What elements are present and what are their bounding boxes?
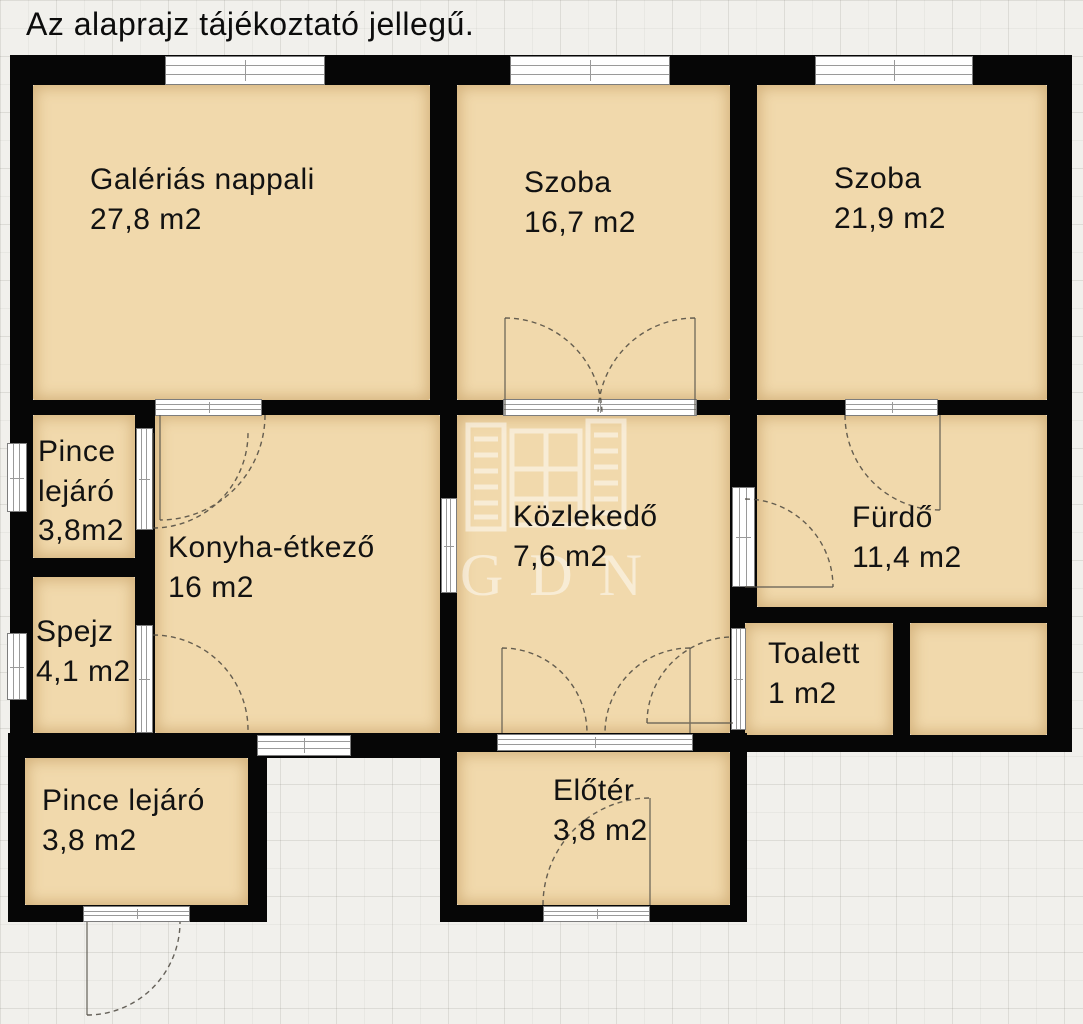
window-icon — [165, 56, 325, 85]
room-name: Pince lejáró — [38, 432, 142, 511]
room-szoba-1 — [457, 85, 730, 400]
window-icon — [510, 56, 670, 85]
room-area: 16 m2 — [168, 568, 448, 608]
room-area: 3,8 m2 — [42, 821, 252, 861]
door-opening-icon — [543, 906, 650, 922]
room-area: 1 m2 — [768, 674, 898, 714]
room-area: 7,6 m2 — [513, 537, 733, 577]
door-opening-icon — [503, 399, 697, 416]
room-name: Galériás nappali — [90, 160, 410, 200]
room-name: Fürdő — [852, 498, 1032, 538]
wall-eloter-right — [730, 733, 747, 922]
wall-szoba1-szoba2 — [730, 55, 757, 415]
room-label-szoba-1: Szoba 16,7 m2 — [524, 163, 704, 242]
room-area: 21,9 m2 — [834, 199, 1014, 239]
room-label-galerias-nappali: Galériás nappali 27,8 m2 — [90, 160, 410, 239]
door-opening-icon — [497, 734, 693, 751]
room-name: Előtér — [553, 771, 713, 811]
room-galerias-nappali — [33, 85, 430, 400]
room-label-kozlekedo: Közlekedő 7,6 m2 — [513, 497, 733, 576]
door-opening-icon — [83, 906, 190, 922]
window-icon — [815, 56, 973, 85]
room-name: Spejz — [36, 612, 156, 652]
wall-bottom-left-section — [8, 733, 457, 758]
wall-nappali-szoba1 — [430, 55, 457, 415]
room-label-spejz: Spejz 4,1 m2 — [36, 612, 156, 691]
window-icon — [257, 735, 351, 756]
room-name: Szoba — [524, 163, 704, 203]
room-label-pince-lejaro-also: Pince lejáró 3,8 m2 — [42, 781, 252, 860]
door-opening-icon — [845, 399, 938, 416]
room-label-eloter: Előtér 3,8 m2 — [553, 771, 713, 850]
room-area: 11,4 m2 — [852, 538, 1032, 578]
room-name: Konyha-étkező — [168, 528, 448, 568]
room-name: Közlekedő — [513, 497, 733, 537]
room-szoba-2 — [757, 85, 1047, 400]
room-area: 3,8m2 — [38, 511, 142, 551]
floorplan-canvas: GDN Galériás nappali 27,8 m2 Szoba 16,7 … — [0, 0, 1083, 1024]
room-label-toalett: Toalett 1 m2 — [768, 634, 898, 713]
room-label-furdo: Fürdő 11,4 m2 — [852, 498, 1032, 577]
door-opening-icon — [732, 487, 755, 587]
room-area: 4,1 m2 — [36, 652, 156, 692]
room-area: 27,8 m2 — [90, 200, 410, 240]
door-opening-icon — [731, 628, 746, 730]
room-name: Szoba — [834, 159, 1014, 199]
wall-bottom-right-section — [730, 735, 1072, 752]
room-name: Pince lejáró — [42, 781, 252, 821]
room-unlabeled-right — [910, 623, 1047, 735]
wall-eloter-left — [440, 733, 457, 922]
wall-pincealso-left — [8, 743, 25, 922]
wall-pincefelso-spejz — [10, 558, 155, 577]
room-label-konyha-etkezo: Konyha-étkező 16 m2 — [168, 528, 448, 607]
room-area: 3,8 m2 — [553, 811, 713, 851]
disclaimer-title: Az alaprajz tájékoztató jellegű. — [26, 6, 474, 43]
window-icon — [7, 443, 27, 512]
room-name: Toalett — [768, 634, 898, 674]
room-area: 16,7 m2 — [524, 203, 704, 243]
door-opening-icon — [155, 399, 262, 416]
window-icon — [7, 633, 27, 700]
room-label-szoba-2: Szoba 21,9 m2 — [834, 159, 1014, 238]
room-label-pince-lejaro-felso: Pince lejáró 3,8m2 — [38, 432, 142, 551]
